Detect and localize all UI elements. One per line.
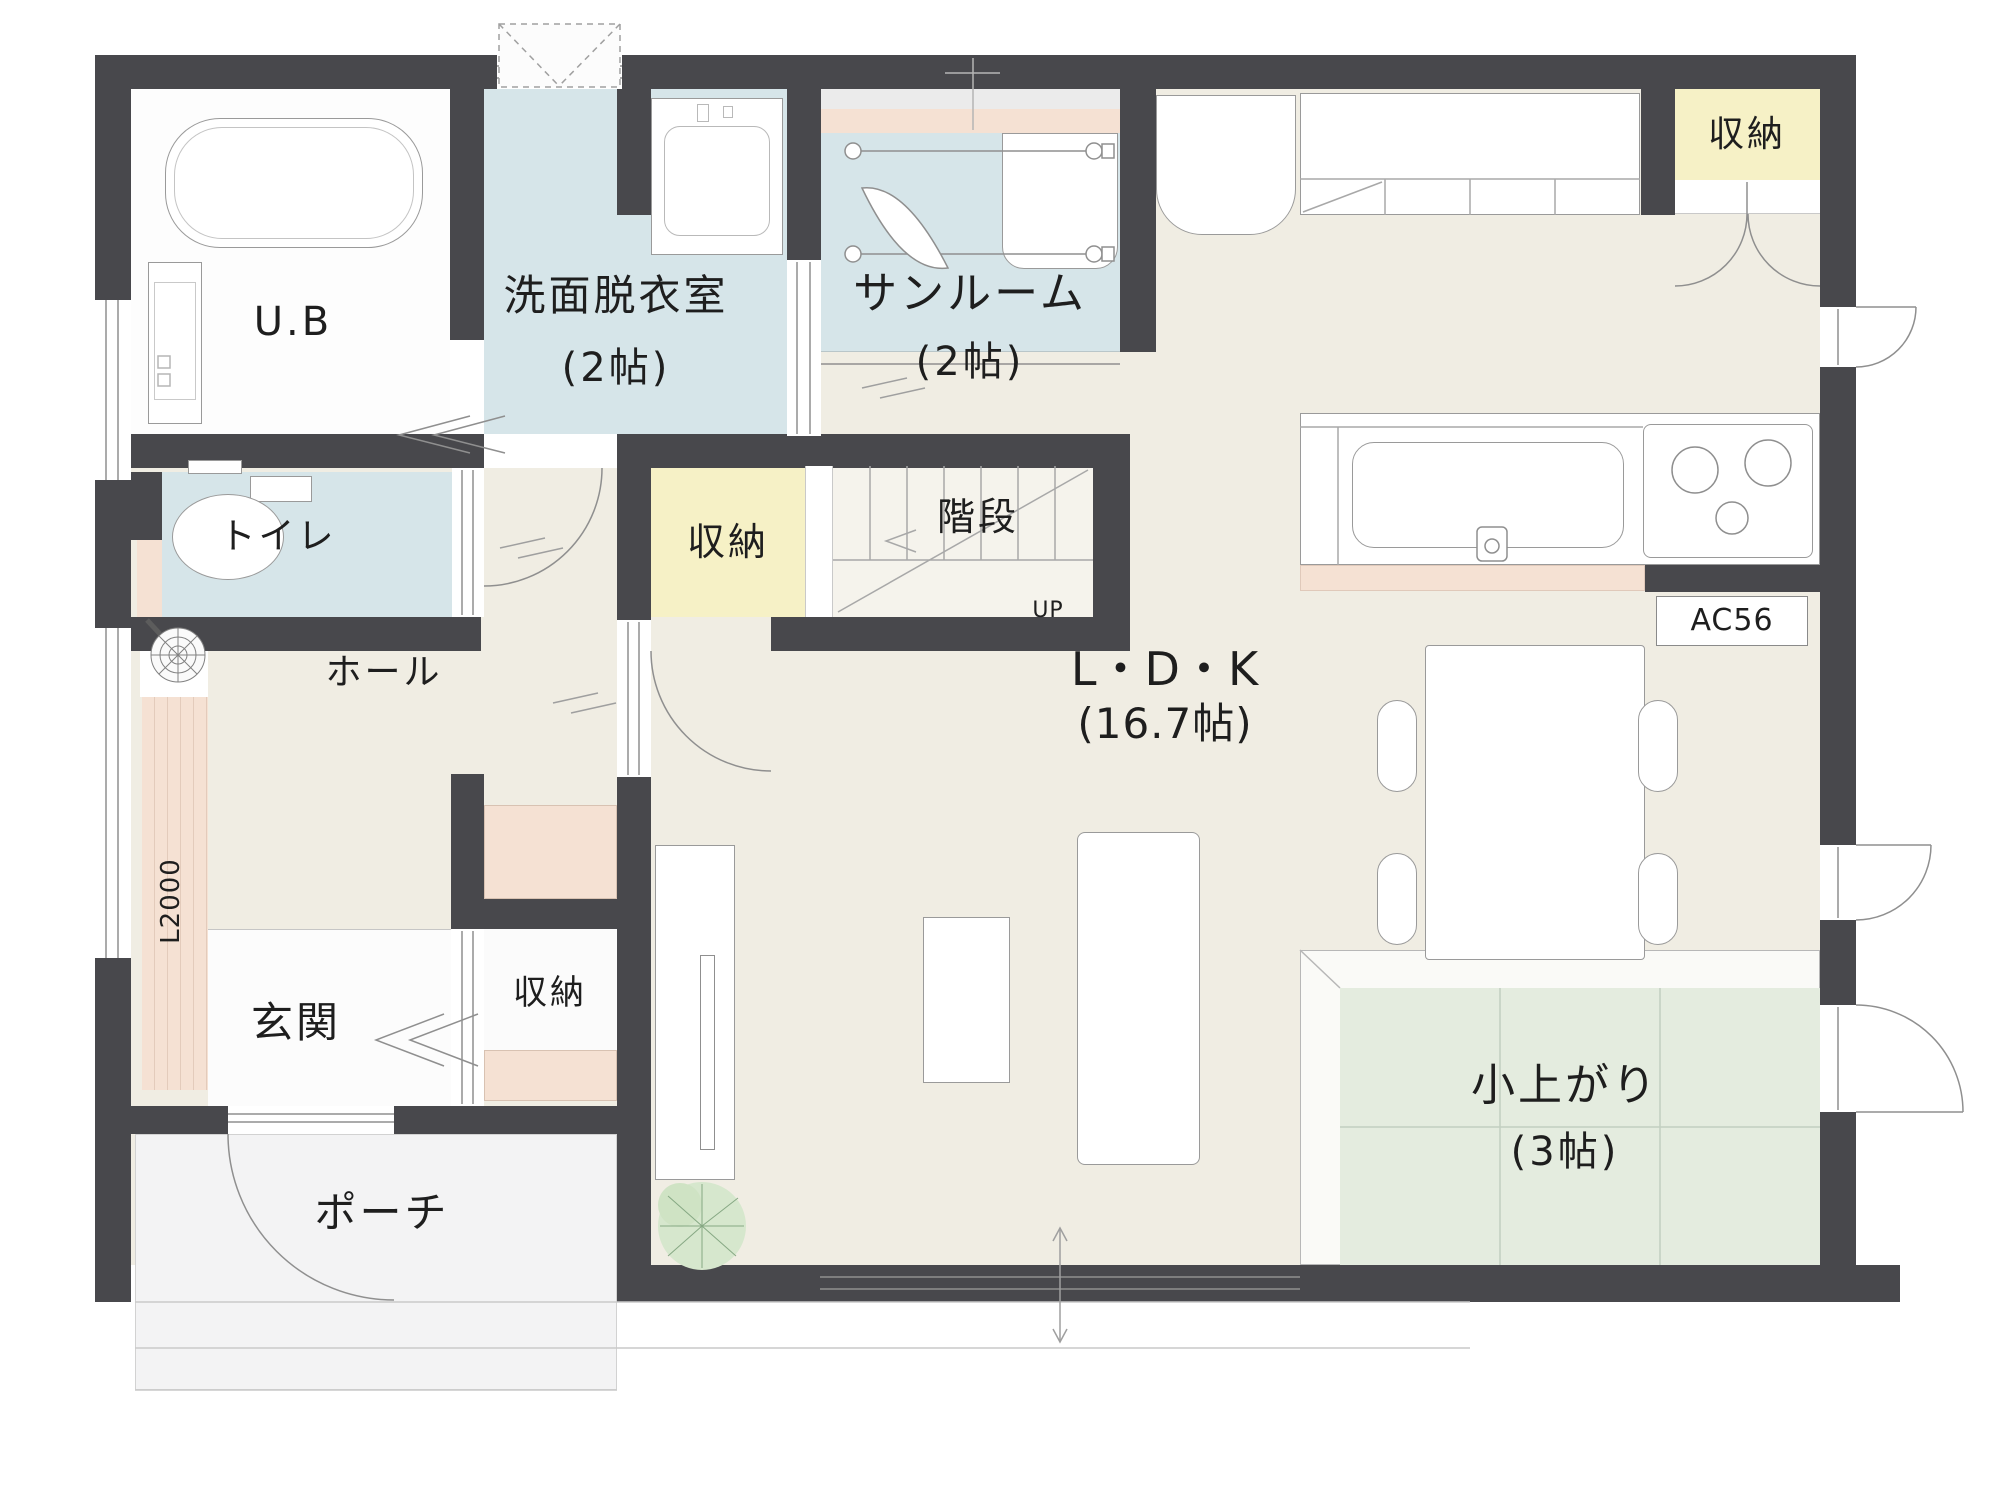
door-senmen-gap (484, 434, 617, 468)
side-table (923, 917, 1010, 1083)
room-label-stairs: 階段 (937, 498, 1019, 536)
wall-storage-top-left (1641, 89, 1675, 215)
wall-genkan-shelf-horiz (484, 899, 617, 929)
washbasin-tap2 (723, 106, 733, 118)
room-label-storage-center: 収納 (687, 523, 769, 561)
washbasin-bowl (664, 126, 770, 236)
room-label-ldk: L・D・K (1071, 646, 1259, 692)
wall-storage-center-left (617, 434, 651, 620)
toilet-tank (250, 476, 312, 502)
wall-senmen-sunroom (787, 89, 821, 260)
door-sunroom-slider (787, 260, 821, 436)
sofa (1077, 832, 1200, 1165)
bath-vanity-inner (154, 282, 196, 400)
door-right-upper (1820, 307, 1856, 367)
wall-toilet-bottom (95, 617, 481, 651)
window-right-mid (1820, 845, 1856, 920)
annotation-ac: AC56 (1690, 606, 1773, 636)
door-storage-center (805, 466, 833, 617)
cupboard (1300, 93, 1640, 215)
chair (1638, 700, 1678, 792)
room-porch (135, 1134, 617, 1390)
bathtub-rim (174, 127, 414, 239)
wall-ldk-left (617, 777, 651, 1302)
koagari-tatami (1340, 988, 1820, 1265)
wall-toilet-left-stub (131, 472, 162, 540)
toilet-counter (137, 540, 162, 618)
room-label-koagari: 小上がり (1471, 1064, 1659, 1108)
room-label-sunroom: サンルーム (853, 272, 1087, 316)
sunroom-window-sill (821, 89, 1120, 109)
tv-board (655, 845, 735, 1180)
wall-bottom (617, 1265, 1900, 1302)
washing-machine (1002, 133, 1118, 269)
chair (1377, 700, 1417, 792)
wall-genkan-bottom-right (394, 1106, 617, 1134)
window-top (497, 55, 622, 89)
window-left-engawa (95, 628, 131, 958)
door-hall-ldk-slider (617, 620, 651, 777)
room-size-koagari: (3帖) (1511, 1132, 1620, 1172)
wall-stairs-right (1093, 434, 1130, 651)
room-label-hall: ホール (325, 655, 442, 691)
wall-genkan-shelf-vert (451, 774, 484, 929)
door-toilet-slider (452, 468, 484, 617)
door-storage-top-band (1675, 180, 1820, 214)
sunroom-window-band (821, 109, 1120, 133)
room-label-storage-genkan: 収納 (513, 976, 587, 1010)
room-label-porch: ポーチ (314, 1192, 449, 1234)
door-entrance-sill (228, 1106, 394, 1134)
wall-sunroom-right (1120, 89, 1156, 352)
door-ub (450, 340, 484, 434)
wall-genkan-bottom-left (95, 1106, 228, 1134)
toilet-hand-shelf (188, 460, 242, 474)
room-label-toilet: トイレ (219, 519, 336, 555)
room-size-sunroom: (2帖) (916, 342, 1025, 382)
room-size-senmen: (2帖) (562, 348, 671, 388)
annotation-deck-length: L2000 (158, 858, 184, 944)
wall-senmen-stub (617, 89, 651, 215)
chair (1377, 853, 1417, 945)
dining-table (1425, 645, 1645, 960)
tv (700, 955, 715, 1150)
annotation-up: UP (1032, 600, 1063, 622)
genkan-storage-shelf-bottom (484, 1050, 617, 1101)
kitchen-sink (1352, 442, 1624, 548)
room-stairs (833, 466, 1093, 617)
genkan-storage-shelf-top (484, 805, 617, 899)
door-genkan-storage-slider (451, 929, 484, 1106)
room-label-ub: U.B (254, 302, 332, 342)
wall-top (95, 55, 1856, 89)
kitchen-counter-band (1300, 565, 1645, 591)
room-size-ldk: (16.7帖) (1077, 703, 1252, 745)
room-label-senmen: 洗面脱衣室 (503, 275, 728, 317)
floor-plan: U.B 洗面脱衣室 (2帖) サンルーム (2帖) トイレ ホール 収納 階段 … (0, 0, 1999, 1500)
room-label-storage-top: 収納 (1708, 117, 1786, 153)
stove (1643, 424, 1813, 558)
room-label-genkan: 玄関 (251, 1002, 341, 1044)
refrigerator (1156, 95, 1296, 235)
window-right-lower (1820, 1005, 1856, 1112)
chair (1638, 853, 1678, 945)
washbasin-tap1 (697, 104, 709, 122)
window-left-ub (95, 300, 131, 480)
